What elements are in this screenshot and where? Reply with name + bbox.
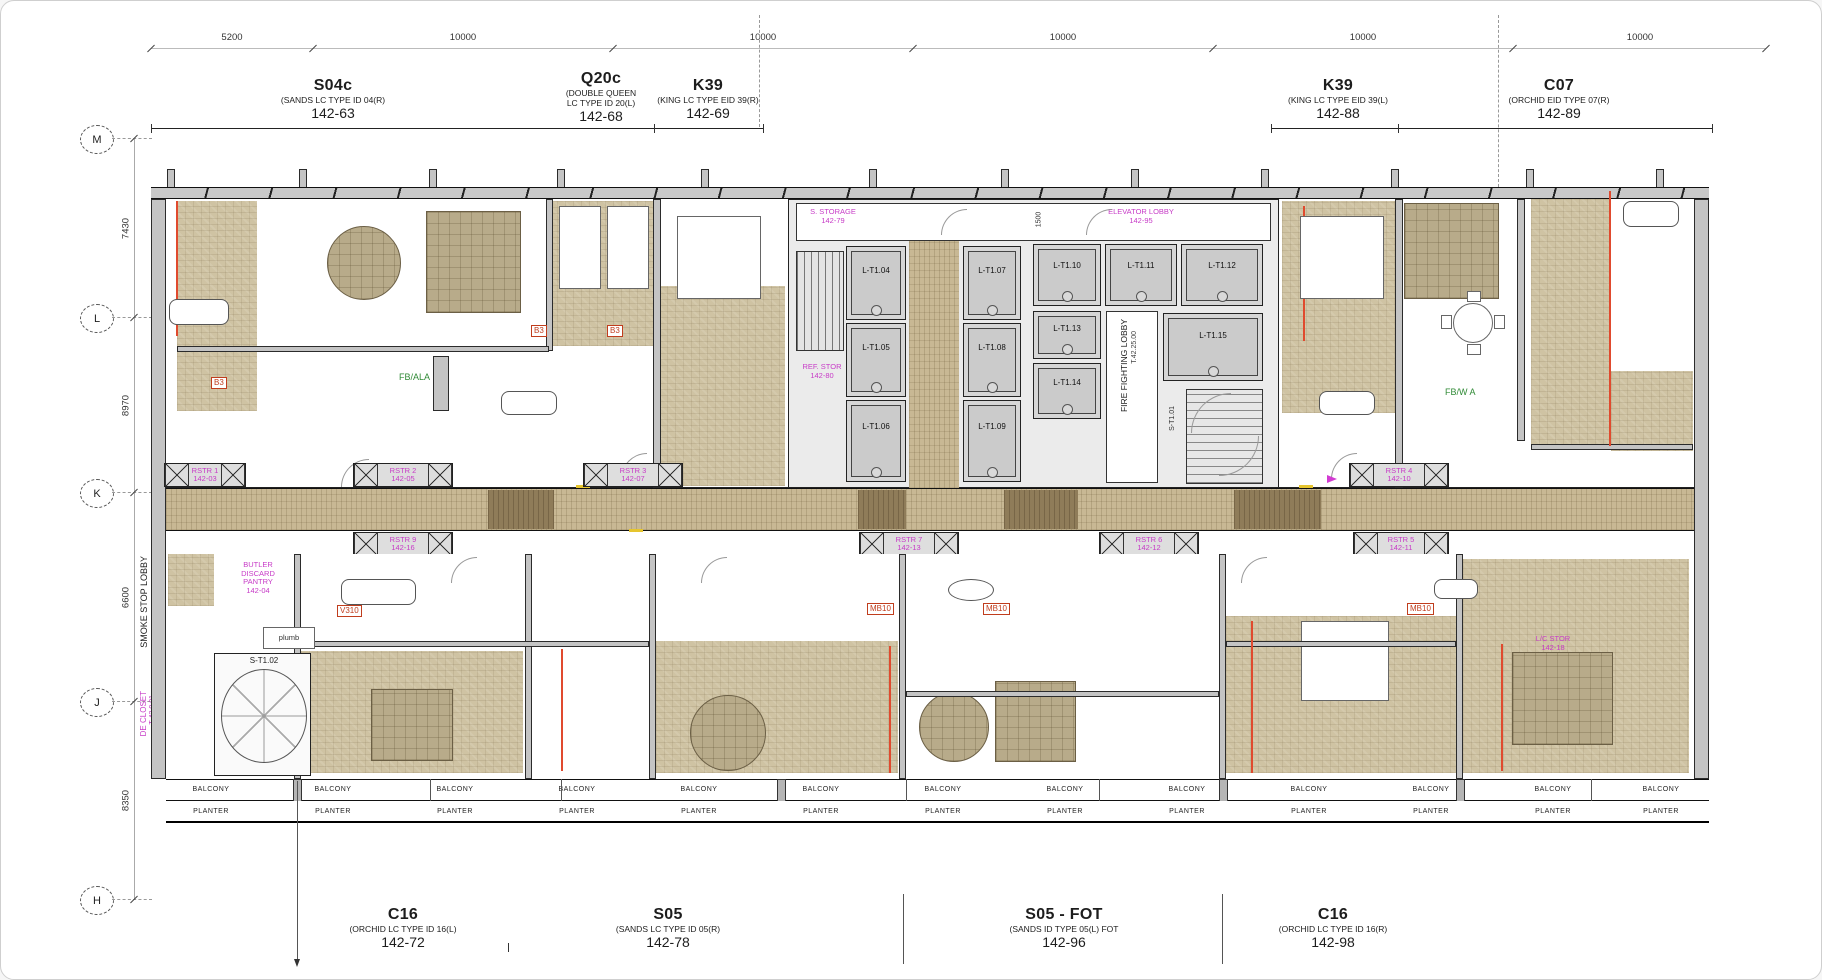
hatch-pad: [658, 464, 682, 486]
riser-box: RSTR 9142-16: [353, 532, 453, 556]
exterior-wall-left: [151, 199, 166, 779]
unit-desc: (ORCHID LC TYPE ID 16(R): [1223, 924, 1443, 934]
hatch-pad: [354, 464, 378, 486]
dining-table: [1453, 303, 1493, 343]
unit-label-s05: S05 (SANDS LC TYPE ID 05(R) 142-78: [558, 906, 778, 950]
top-dim-label: 10000: [1333, 32, 1393, 43]
unit-desc: (KING LC TYPE EID 39(R): [633, 95, 783, 105]
balcony-label: BALCONY: [674, 786, 724, 793]
fire-fighting-lobby-label: FIRE FIGHTING LOBBY: [1119, 319, 1129, 412]
hatch-pad: [934, 533, 958, 555]
unit-label-s05-fot: S05 - FOT (SANDS ID TYPE 05(L) FOT 142-9…: [944, 906, 1184, 950]
red-rated-wall-line: [561, 649, 563, 771]
round-rug: [919, 692, 989, 762]
corridor: [166, 488, 1694, 531]
planter-label: PLANTER: [430, 808, 480, 815]
lift-shaft: L-T1.10: [1033, 244, 1101, 306]
underline-tick: [1398, 124, 1399, 133]
party-wall: [546, 199, 553, 351]
bathtub: [1434, 579, 1478, 599]
top-dim-label: 10000: [433, 32, 493, 43]
top-dim-label: 10000: [733, 32, 793, 43]
interior-wall: [177, 346, 549, 352]
lift-shaft: L-T1.04: [846, 246, 906, 320]
smoke-stop-lobby-text: SMOKE STOP LOBBY: [139, 556, 149, 648]
balcony-label: BALCONY: [1406, 786, 1456, 793]
smoke-stop-lobby-label: SMOKE STOP LOBBY: [139, 556, 149, 648]
balcony-label: BALCONY: [1636, 786, 1686, 793]
extension-line: [903, 894, 904, 964]
lift-label: L-T1.07: [964, 266, 1020, 275]
riser-box: RSTR 4142-10: [1349, 463, 1449, 487]
hatch-pad: [428, 533, 452, 555]
planter-label: PLANTER: [552, 808, 602, 815]
dining-chair: [1441, 315, 1452, 329]
lc-stor-number: 142-18: [1523, 644, 1583, 653]
square-rug: [1404, 203, 1499, 299]
hatch-pad: [1354, 533, 1378, 555]
stair-left-label: S-T1.02: [229, 656, 299, 665]
spiral-stair: [221, 669, 307, 763]
grid-bubble-h: H: [80, 886, 114, 915]
underline-tick: [1271, 124, 1272, 133]
bathroom-tag-b3: B3: [531, 325, 547, 337]
planter-label: PLANTER: [1162, 808, 1212, 815]
party-wall: [899, 554, 906, 779]
top-dim-label: 10000: [1610, 32, 1670, 43]
bed: [559, 206, 601, 289]
ref-store-number: 142-80: [797, 372, 847, 381]
riser-number: 142-13: [897, 544, 920, 552]
red-rated-wall-line: [1251, 621, 1253, 773]
hatch-pad: [860, 533, 884, 555]
carpet-region: [656, 641, 898, 773]
grid-letter: L: [94, 313, 100, 325]
top-dimension-line: [151, 48, 1766, 49]
bed: [677, 216, 761, 299]
unit-desc: (SANDS LC TYPE ID 04(R): [223, 95, 443, 105]
column-stub: [1131, 169, 1139, 189]
bathtub: [1319, 391, 1375, 415]
butler-number: 142-04: [223, 587, 293, 596]
unit-code: C16: [1223, 906, 1443, 924]
planter-label: PLANTER: [308, 808, 358, 815]
planter-label: PLANTER: [918, 808, 968, 815]
lift-label: L-T1.06: [847, 422, 905, 431]
bathroom-tag-b3: B3: [211, 377, 227, 389]
bathroom-tag-mb10: MB10: [1407, 603, 1434, 615]
balcony-divider: [906, 779, 907, 801]
carpet-region: [1531, 199, 1609, 446]
leader-line: [141, 549, 142, 551]
unit-label-k39-left: K39 (KING LC TYPE EID 39(L) 142-88: [1233, 77, 1443, 121]
corridor-dark-pad: [488, 490, 554, 529]
unit-desc: (ORCHID EID TYPE 07(R): [1454, 95, 1664, 105]
unit-label-c16-left: C16 (ORCHID LC TYPE ID 16(L) 142-72: [293, 906, 513, 950]
round-rug: [327, 226, 401, 300]
underline-tick: [151, 124, 152, 133]
floor-plan-sheet: 5200 10000 10000 10000 10000 10000 S04c …: [0, 0, 1822, 980]
dining-chair: [1494, 315, 1505, 329]
interior-wall: [301, 641, 649, 647]
grid-letter: J: [94, 697, 100, 709]
core-dim-1500: 1500: [1035, 212, 1042, 228]
left-dimension-line: [134, 138, 135, 899]
core-lift-lobby-carpet: [909, 241, 959, 488]
unit-number: 142-98: [1223, 934, 1443, 950]
unit-label-c16-right: C16 (ORCHID LC TYPE ID 16(R) 142-98: [1223, 906, 1443, 950]
bathroom-tag-b3: B3: [607, 325, 623, 337]
riser-number: 142-11: [1390, 544, 1413, 552]
left-dim-label: 8970: [121, 376, 132, 436]
unit-code: S04c: [223, 77, 443, 95]
planter-label: PLANTER: [674, 808, 724, 815]
corridor-dark-pad: [1004, 490, 1078, 529]
left-dim-label: 7430: [121, 199, 132, 259]
party-wall: [649, 554, 656, 779]
lift-label: L-T1.13: [1034, 324, 1100, 333]
unit-desc: (SANDS LC TYPE ID 05(R): [558, 924, 778, 934]
top-dim-label: 10000: [1033, 32, 1093, 43]
square-rug: [1512, 652, 1613, 745]
balcony-label: BALCONY: [308, 786, 358, 793]
underline-tick: [763, 124, 764, 133]
core-service-lobby: [796, 203, 1271, 241]
lift-shaft: L-T1.05: [846, 323, 906, 397]
column-stub: [429, 169, 437, 189]
underline-tick: [654, 124, 655, 133]
lift-shaft: L-T1.11: [1105, 244, 1177, 306]
balcony-label: BALCONY: [1528, 786, 1578, 793]
extension-arrow: [294, 959, 300, 967]
grid-letter: H: [93, 895, 101, 907]
unit-desc: (ORCHID LC TYPE ID 16(L): [293, 924, 513, 934]
interior-wall: [906, 691, 1219, 697]
balcony-divider: [1591, 779, 1592, 801]
butler-pantry-label: BUTLER DISCARD PANTRY 142-04: [223, 561, 293, 595]
unit-number: 142-78: [558, 934, 778, 950]
grid-letter: M: [92, 134, 101, 146]
unit-code: C07: [1454, 77, 1664, 95]
storage-label: S. STORAGE 142-79: [801, 208, 865, 225]
bathroom-tag-mb10: MB10: [867, 603, 894, 615]
hatch-pad: [1100, 533, 1124, 555]
lift-label: L-T1.15: [1164, 331, 1262, 340]
balcony-label: BALCONY: [1284, 786, 1334, 793]
carpet-region: [1611, 371, 1693, 451]
unit-desc: (KING LC TYPE EID 39(L): [1233, 95, 1443, 105]
ref-store-label: REF. STOR 142-80: [797, 363, 847, 380]
column-stub: [869, 169, 877, 189]
riser-box: RSTR 1142-03: [164, 463, 246, 487]
exterior-wall-top: [151, 187, 1709, 199]
unit-code: K39: [633, 77, 783, 95]
carpet-region: [659, 286, 785, 486]
riser-number: 142-07: [621, 475, 644, 483]
balcony-divider: [430, 779, 431, 801]
riser-box: RSTR 6142-12: [1099, 532, 1199, 556]
party-wall: [525, 554, 532, 779]
interior-wall: [1517, 199, 1525, 441]
hatch-pad: [354, 533, 378, 555]
hatch-pad: [221, 464, 245, 486]
column-stub: [167, 169, 175, 189]
bed: [1301, 621, 1389, 701]
dining-chair: [1467, 344, 1481, 355]
balcony-label: BALCONY: [430, 786, 480, 793]
balcony-label: BALCONY: [186, 786, 236, 793]
balcony-divider: [1099, 779, 1100, 801]
column-stub: [1526, 169, 1534, 189]
riser-box: RSTR 7142-13: [859, 532, 959, 556]
column-stub: [1391, 169, 1399, 189]
column-stub: [1656, 169, 1664, 189]
core-stair-label: S-T1.01: [1169, 406, 1176, 431]
fire-fighting-lobby-id: T.42.25.00: [1131, 331, 1138, 364]
bathroom-tag-v310: V310: [337, 605, 362, 617]
lift-shaft: L-T1.13: [1033, 311, 1101, 359]
lc-stor-label: L/C STOR 142-18: [1523, 635, 1583, 652]
stair-run: [796, 251, 844, 351]
de-closet-label: DE CLOSET: [139, 691, 148, 736]
unit-number: 142-72: [293, 934, 513, 950]
lift-label: L-T1.04: [847, 266, 905, 275]
carpet-region: [168, 554, 214, 606]
square-rug: [371, 689, 453, 761]
left-dim-label: 8350: [121, 771, 132, 831]
storage-number: 142-79: [801, 217, 865, 226]
corridor-dark-pad: [858, 490, 906, 529]
hatch-pad: [1350, 464, 1374, 486]
planter-label: PLANTER: [1406, 808, 1456, 815]
bathtub: [1623, 201, 1679, 227]
riser-number: 142-12: [1137, 544, 1160, 552]
fire-fighting-lobby-text: FIRE FIGHTING LOBBY: [1119, 319, 1129, 412]
threshold-mark: [629, 529, 643, 532]
lift-label: L-T1.08: [964, 343, 1020, 352]
hatch-pad: [165, 464, 189, 486]
bathroom-tag-mb10: MB10: [983, 603, 1010, 615]
interior-wall: [1531, 444, 1693, 450]
balcony-divider: [561, 779, 562, 801]
unit-number: 142-89: [1454, 105, 1664, 121]
lift-shaft: L-T1.15: [1163, 313, 1263, 381]
grid-bubble-l: L: [80, 304, 114, 333]
bathtub-oval: [948, 579, 994, 601]
balcony-label: BALCONY: [796, 786, 846, 793]
plumb-label: plumb: [279, 634, 299, 643]
unit-underline: [151, 128, 763, 129]
lift-shaft: L-T1.09: [963, 400, 1021, 482]
balcony-label: BALCONY: [1162, 786, 1212, 793]
unit-label-s04c: S04c (SANDS LC TYPE ID 04(R) 142-63: [223, 77, 443, 121]
lift-label: L-T1.10: [1034, 261, 1100, 270]
riser-number: 142-05: [391, 475, 414, 483]
top-dim-label: 5200: [202, 32, 262, 43]
hatch-pad: [428, 464, 452, 486]
lift-shaft: L-T1.06: [846, 400, 906, 482]
party-wall: [1219, 554, 1226, 779]
lift-label: L-T1.05: [847, 343, 905, 352]
interior-wall: [1226, 641, 1456, 647]
grid-bubble-k: K: [80, 479, 114, 508]
lift-shaft: L-T1.12: [1181, 244, 1263, 306]
column-stub: [1001, 169, 1009, 189]
riser-number: 142-16: [391, 544, 414, 552]
underline-tick: [1712, 124, 1713, 133]
hatch-pad: [1174, 533, 1198, 555]
balcony-label: BALCONY: [1040, 786, 1090, 793]
unit-number: 142-63: [223, 105, 443, 121]
unit-code: K39: [1233, 77, 1443, 95]
lift-label: L-T1.12: [1182, 261, 1262, 270]
hatch-pad: [1424, 464, 1448, 486]
unit-desc: (SANDS ID TYPE 05(L) FOT: [944, 924, 1184, 934]
flow-arrow: [1327, 475, 1337, 483]
unit-label-c07: C07 (ORCHID EID TYPE 07(R) 142-89: [1454, 77, 1664, 121]
lift-label: L-T1.11: [1106, 261, 1176, 270]
balcony-label: BALCONY: [552, 786, 602, 793]
grid-bubble-m: M: [80, 125, 114, 154]
hatch-pad: [1424, 533, 1448, 555]
lift-shaft: L-T1.14: [1033, 363, 1101, 419]
riser-box: RSTR 5142-11: [1353, 532, 1449, 556]
bed: [1300, 216, 1384, 299]
unit-code: C16: [293, 906, 513, 924]
riser-box: RSTR 2142-05: [353, 463, 453, 487]
interior-wall: [433, 356, 449, 411]
column-stub: [1261, 169, 1269, 189]
red-rated-wall-line: [1609, 191, 1611, 446]
red-rated-wall-line: [889, 646, 891, 773]
fb-wa-label: FB/W A: [1445, 387, 1476, 397]
unit-number: 142-69: [633, 105, 783, 121]
plumb-room: plumb: [263, 627, 315, 649]
planter-label: PLANTER: [1636, 808, 1686, 815]
riser-number: 142-10: [1387, 475, 1410, 483]
lift-label: L-T1.14: [1034, 378, 1100, 387]
fb-ala-label: FB/ALA: [399, 372, 430, 382]
column-stub: [701, 169, 709, 189]
bed: [607, 206, 649, 289]
round-rug: [690, 695, 766, 771]
balcony-label: BALCONY: [918, 786, 968, 793]
left-dim-label: 6600: [121, 568, 132, 628]
hatch-pad: [584, 464, 608, 486]
lift-label: L-T1.09: [964, 422, 1020, 431]
riser-number: 142-03: [193, 475, 216, 483]
planter-label: PLANTER: [1284, 808, 1334, 815]
unit-code: S05: [558, 906, 778, 924]
planter-label: PLANTER: [186, 808, 236, 815]
unit-number: 142-96: [944, 934, 1184, 950]
party-wall: [653, 199, 661, 488]
threshold-mark: [1299, 485, 1313, 488]
unit-code: S05 - FOT: [944, 906, 1184, 924]
corridor-dark-pad: [1234, 490, 1321, 529]
bathtub: [501, 391, 557, 415]
lift-shaft: L-T1.07: [963, 246, 1021, 320]
column-stub: [299, 169, 307, 189]
unit-underline: [1271, 128, 1713, 129]
planter-label: PLANTER: [1528, 808, 1578, 815]
square-rug: [426, 211, 521, 313]
planter-label: PLANTER: [1040, 808, 1090, 815]
party-wall: [1395, 199, 1403, 488]
exterior-wall-right: [1694, 199, 1709, 779]
bathtub: [341, 579, 416, 605]
grid-letter: K: [93, 488, 100, 500]
grid-bubble-j: J: [80, 688, 114, 717]
unit-label-k39-right: K39 (KING LC TYPE EID 39(R) 142-69: [633, 77, 783, 121]
red-rated-wall-line: [1501, 644, 1503, 771]
bathtub: [169, 299, 229, 325]
column-stub: [557, 169, 565, 189]
planter-label: PLANTER: [796, 808, 846, 815]
unit-number: 142-88: [1233, 105, 1443, 121]
dining-chair: [1467, 291, 1481, 302]
riser-box: RSTR 3142-07: [583, 463, 683, 487]
lift-shaft: L-T1.08: [963, 323, 1021, 397]
